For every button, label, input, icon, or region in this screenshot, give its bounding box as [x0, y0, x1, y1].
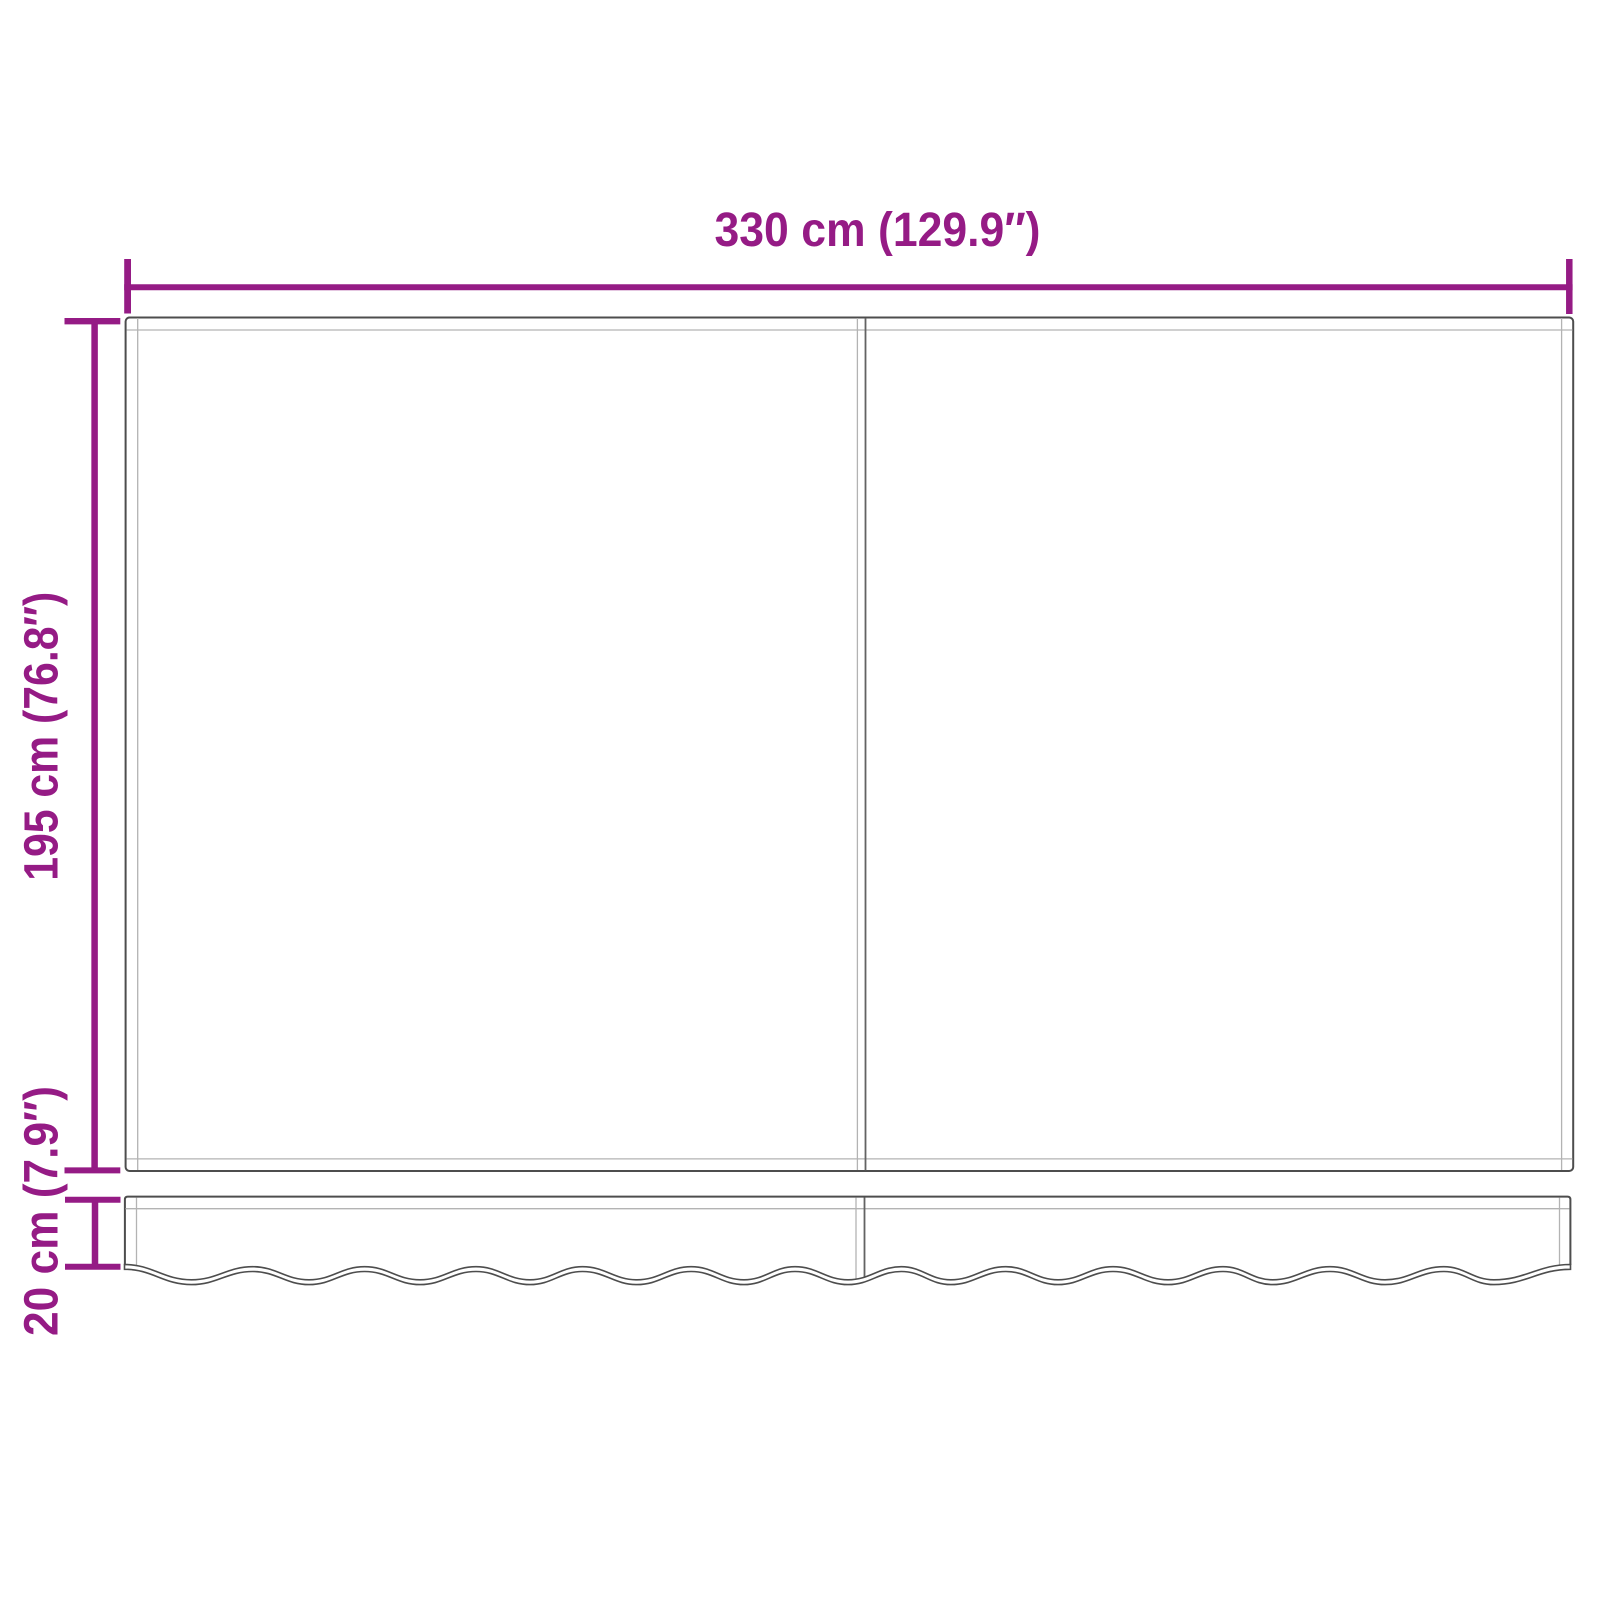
- svg-text:330 cm (129.9″): 330 cm (129.9″): [715, 203, 1041, 257]
- svg-text:195 cm (76.8″): 195 cm (76.8″): [14, 592, 68, 881]
- svg-text:20 cm (7.9″): 20 cm (7.9″): [14, 1086, 68, 1336]
